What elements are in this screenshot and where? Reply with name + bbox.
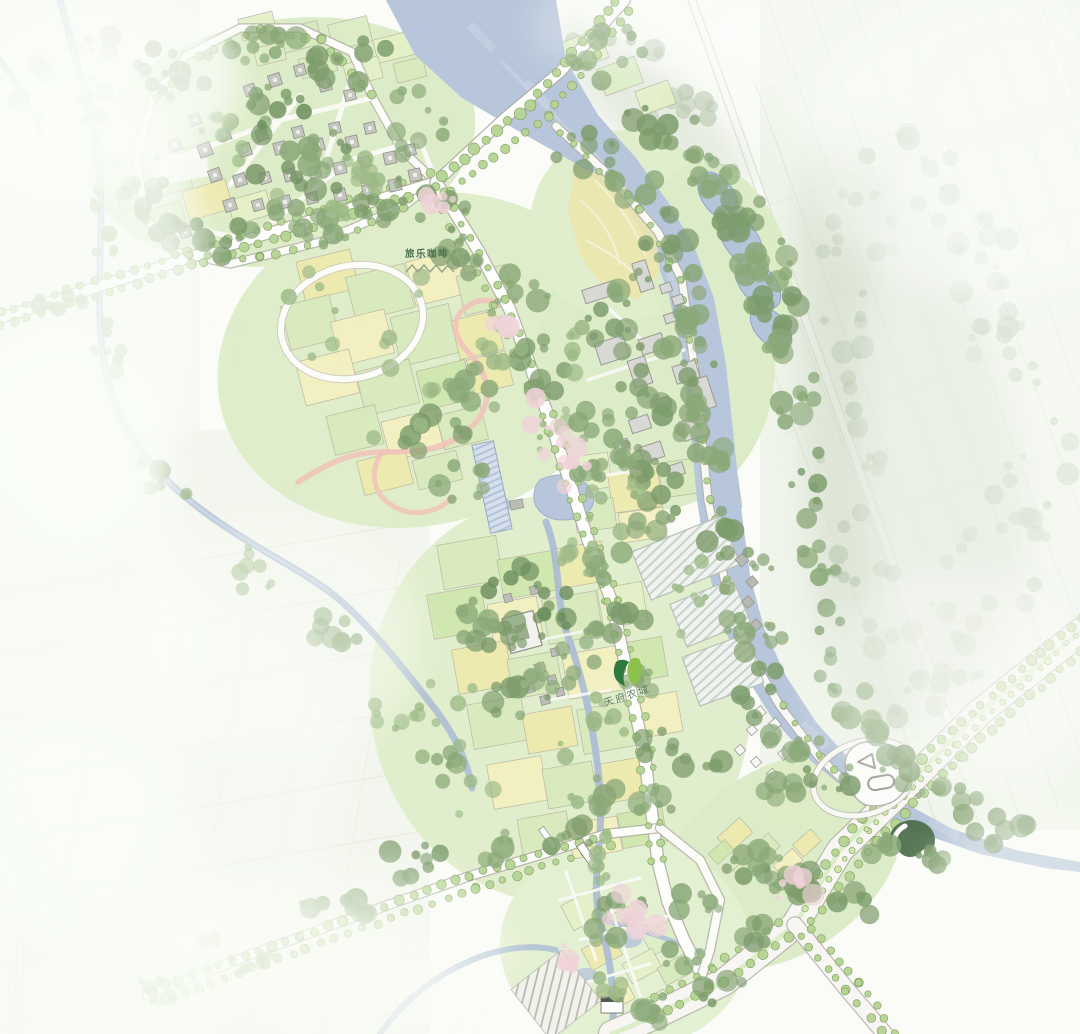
tree-canopy-dot xyxy=(481,380,499,398)
tree-canopy-dot xyxy=(628,791,652,815)
tree-canopy-dot xyxy=(413,417,428,432)
tree-canopy-dot xyxy=(831,340,854,363)
street-tree-dot xyxy=(525,866,534,875)
tree-canopy-dot xyxy=(447,495,456,504)
tree-canopy-dot xyxy=(341,155,353,167)
tree-canopy-dot xyxy=(315,282,324,291)
street-tree-dot xyxy=(522,129,530,137)
blossom-tree-dot xyxy=(793,868,812,887)
tree-canopy-dot xyxy=(366,430,381,445)
tree-canopy-dot xyxy=(661,206,679,224)
tree-canopy-dot xyxy=(559,586,573,600)
tree-canopy-dot xyxy=(775,245,798,268)
street-tree-dot xyxy=(802,905,808,911)
street-tree-dot xyxy=(578,494,586,502)
tree-canopy-dot xyxy=(500,628,518,646)
tree-canopy-dot xyxy=(749,560,756,567)
street-tree-dot xyxy=(830,766,837,773)
tree-canopy-dot xyxy=(712,213,731,232)
tree-canopy-dot xyxy=(450,695,466,711)
tree-canopy-dot xyxy=(585,839,593,847)
street-tree-dot xyxy=(807,925,815,933)
tree-canopy-dot xyxy=(545,381,564,400)
street-tree-dot xyxy=(482,136,490,144)
tree-canopy-dot xyxy=(545,680,560,695)
street-tree-dot xyxy=(567,81,576,90)
tree-canopy-dot xyxy=(662,240,677,255)
tree-canopy-dot xyxy=(473,491,482,500)
street-tree-dot xyxy=(805,943,813,951)
tree-canopy-dot xyxy=(797,391,808,402)
tree-canopy-dot xyxy=(675,584,684,593)
tree-canopy-dot xyxy=(747,214,764,231)
tree-canopy-dot xyxy=(308,352,317,361)
tree-canopy-dot xyxy=(439,117,448,126)
street-tree-dot xyxy=(855,979,862,986)
tree-canopy-dot xyxy=(330,182,342,194)
tree-canopy-dot xyxy=(478,609,500,631)
street-tree-dot xyxy=(501,144,510,153)
street-tree-dot xyxy=(551,101,559,109)
street-tree-dot xyxy=(804,735,811,742)
tree-canopy-dot xyxy=(747,839,770,862)
tree-canopy-dot xyxy=(284,96,293,105)
tree-canopy-dot xyxy=(469,596,478,605)
tree-canopy-dot xyxy=(410,132,427,149)
tree-canopy-dot xyxy=(567,132,576,141)
tree-canopy-dot xyxy=(779,267,793,281)
tree-canopy-dot xyxy=(765,771,788,794)
tree-canopy-dot xyxy=(820,316,829,325)
tree-canopy-dot xyxy=(777,237,785,245)
tree-canopy-dot xyxy=(229,217,247,235)
street-tree-dot xyxy=(485,265,491,271)
street-tree-dot xyxy=(784,932,794,942)
tree-canopy-dot xyxy=(679,96,696,113)
tree-canopy-dot xyxy=(651,457,659,465)
tree-canopy-dot xyxy=(426,679,436,689)
street-tree-dot xyxy=(845,872,855,882)
tree-canopy-dot xyxy=(561,653,567,659)
street-tree-dot xyxy=(367,90,376,99)
tree-canopy-dot xyxy=(587,540,598,551)
tree-canopy-dot xyxy=(708,998,717,1007)
tree-canopy-dot xyxy=(302,265,315,278)
tree-canopy-dot xyxy=(566,364,584,382)
street-tree-dot xyxy=(514,108,526,120)
tree-canopy-dot xyxy=(514,342,528,356)
tree-canopy-dot xyxy=(614,189,634,209)
tree-canopy-dot xyxy=(503,570,518,585)
street-tree-dot xyxy=(580,531,586,537)
tree-canopy-dot xyxy=(714,904,722,912)
tree-canopy-dot xyxy=(269,46,282,59)
tree-canopy-dot xyxy=(287,199,305,217)
street-tree-dot xyxy=(817,935,825,943)
tree-canopy-dot xyxy=(325,337,340,352)
tree-canopy-dot xyxy=(814,735,825,746)
tree-canopy-dot xyxy=(953,804,974,825)
tree-canopy-dot xyxy=(603,428,623,448)
tree-canopy-dot xyxy=(746,709,763,726)
tree-canopy-dot xyxy=(610,447,628,465)
tree-canopy-dot xyxy=(461,207,469,215)
blossom-tree-dot xyxy=(602,913,615,926)
street-tree-dot xyxy=(239,242,249,252)
tree-canopy-dot xyxy=(619,988,627,996)
tree-canopy-dot xyxy=(588,858,605,875)
street-tree-dot xyxy=(449,162,459,172)
tree-canopy-dot xyxy=(798,468,806,476)
tree-canopy-dot xyxy=(636,342,645,351)
tree-canopy-dot xyxy=(646,783,659,796)
street-tree-dot xyxy=(908,798,917,807)
street-tree-dot xyxy=(844,967,852,975)
village-house-roof xyxy=(368,126,372,130)
blossom-tree-dot xyxy=(438,192,447,201)
blossom-tree-dot xyxy=(582,461,592,471)
tree-canopy-dot xyxy=(473,464,485,476)
tree-canopy-dot xyxy=(603,138,620,155)
street-tree-dot xyxy=(842,856,847,861)
street-tree-dot xyxy=(573,513,581,521)
tree-canopy-dot xyxy=(684,565,695,576)
blossom-tree-dot xyxy=(545,425,551,431)
street-tree-dot xyxy=(568,855,575,862)
tree-canopy-dot xyxy=(412,84,427,99)
tree-canopy-dot xyxy=(537,434,543,440)
tree-canopy-dot xyxy=(837,520,850,533)
tree-canopy-dot xyxy=(459,233,467,241)
tree-canopy-dot xyxy=(268,204,285,221)
street-tree-dot xyxy=(867,1014,876,1023)
tree-canopy-dot xyxy=(602,872,611,881)
tree-canopy-dot xyxy=(678,367,696,385)
tree-canopy-dot xyxy=(680,359,688,367)
tree-canopy-dot xyxy=(831,246,842,257)
tree-canopy-dot xyxy=(689,304,710,325)
tree-canopy-dot xyxy=(431,753,443,765)
tree-canopy-dot xyxy=(219,236,232,249)
cafe-area-label: 旅乐咖啡 xyxy=(405,248,449,260)
tree-canopy-dot xyxy=(593,971,606,984)
street-tree-dot xyxy=(467,235,474,242)
street-tree-dot xyxy=(650,764,656,770)
tree-canopy-dot xyxy=(535,661,547,673)
street-tree-dot xyxy=(525,100,536,111)
tree-canopy-dot xyxy=(623,299,631,307)
tree-canopy-dot xyxy=(489,401,500,412)
blossom-tree-dot xyxy=(525,388,545,408)
street-tree-dot xyxy=(486,881,494,889)
tree-canopy-dot xyxy=(459,427,473,441)
tree-canopy-dot xyxy=(455,810,463,818)
tree-canopy-dot xyxy=(782,286,802,306)
street-tree-dot xyxy=(818,906,826,914)
street-tree-dot xyxy=(557,130,564,137)
street-tree-dot xyxy=(513,871,523,881)
blossom-tree-dot xyxy=(536,417,542,423)
tree-canopy-dot xyxy=(757,553,770,566)
tree-canopy-dot xyxy=(435,480,442,487)
tree-canopy-dot xyxy=(476,337,489,350)
tree-canopy-dot xyxy=(924,844,937,857)
tree-canopy-dot xyxy=(694,554,709,569)
tree-canopy-dot xyxy=(526,289,550,313)
tree-canopy-dot xyxy=(296,104,312,120)
tree-canopy-dot xyxy=(916,852,923,859)
tree-canopy-dot xyxy=(752,285,773,306)
street-tree-dot xyxy=(657,819,663,825)
village-house-roof xyxy=(413,173,418,178)
tree-canopy-dot xyxy=(693,451,699,457)
tree-canopy-dot xyxy=(465,363,479,377)
tree-canopy-dot xyxy=(765,636,778,649)
tree-canopy-dot xyxy=(517,638,527,648)
tree-canopy-dot xyxy=(809,483,818,492)
tree-canopy-dot xyxy=(421,842,429,850)
tree-canopy-dot xyxy=(232,154,245,167)
tree-canopy-dot xyxy=(767,663,784,680)
tree-canopy-dot xyxy=(453,739,466,752)
street-tree-dot xyxy=(629,715,636,722)
tree-canopy-dot xyxy=(743,547,754,558)
tree-canopy-dot xyxy=(687,176,698,187)
tree-canopy-dot xyxy=(562,544,579,561)
tree-canopy-dot xyxy=(377,199,400,222)
tree-canopy-dot xyxy=(663,960,670,967)
blossom-tree-dot xyxy=(418,187,435,204)
tree-canopy-dot xyxy=(859,289,867,297)
blossom-tree-dot xyxy=(611,883,631,903)
street-tree-dot xyxy=(666,986,674,994)
tree-canopy-dot xyxy=(382,359,400,377)
tree-canopy-dot xyxy=(319,240,329,250)
tree-canopy-dot xyxy=(646,520,668,542)
tree-canopy-dot xyxy=(392,724,399,731)
masterplan-map-canvas: 旅乐咖啡 天府农城 xyxy=(0,0,1080,1034)
street-tree-dot xyxy=(792,720,798,726)
tree-canopy-dot xyxy=(567,349,579,361)
street-tree-dot xyxy=(499,877,506,884)
fade-wash xyxy=(120,520,420,760)
tree-canopy-dot xyxy=(507,284,524,301)
tree-canopy-dot xyxy=(587,620,606,639)
tree-canopy-dot xyxy=(533,612,545,624)
tree-canopy-dot xyxy=(573,159,593,179)
street-tree-dot xyxy=(520,855,527,862)
tree-canopy-dot xyxy=(456,605,469,618)
tree-canopy-dot xyxy=(645,276,652,283)
street-tree-dot xyxy=(505,860,515,870)
tree-canopy-dot xyxy=(613,342,632,361)
blossom-tree-dot xyxy=(561,943,567,949)
tree-canopy-dot xyxy=(635,268,643,276)
tree-canopy-dot xyxy=(557,748,574,765)
street-tree-dot xyxy=(857,838,863,844)
street-tree-dot xyxy=(264,222,272,230)
tree-canopy-dot xyxy=(467,683,477,693)
tree-canopy-dot xyxy=(487,308,496,317)
tree-canopy-dot xyxy=(625,327,632,334)
tree-canopy-dot xyxy=(330,52,343,65)
tree-canopy-dot xyxy=(544,694,551,701)
tree-canopy-dot xyxy=(876,836,893,853)
tree-canopy-dot xyxy=(212,246,232,266)
tree-canopy-dot xyxy=(611,542,633,564)
tree-canopy-dot xyxy=(729,253,752,276)
tree-canopy-dot xyxy=(562,406,570,414)
tree-canopy-dot xyxy=(561,830,571,840)
street-tree-dot xyxy=(832,849,840,857)
street-tree-dot xyxy=(494,281,502,289)
tree-canopy-dot xyxy=(645,170,664,189)
street-tree-dot xyxy=(204,252,212,260)
courtyard-shed xyxy=(503,593,513,603)
tree-canopy-dot xyxy=(710,360,718,368)
tree-canopy-dot xyxy=(450,417,461,428)
tree-canopy-dot xyxy=(719,164,740,185)
tree-canopy-dot xyxy=(808,372,820,384)
tree-canopy-dot xyxy=(591,70,611,90)
tree-canopy-dot xyxy=(247,41,260,54)
street-tree-dot xyxy=(578,72,584,78)
street-tree-dot xyxy=(816,752,822,758)
tree-canopy-dot xyxy=(606,708,622,724)
tree-canopy-dot xyxy=(746,915,762,931)
street-tree-dot xyxy=(491,125,503,137)
street-tree-dot xyxy=(317,35,326,44)
street-tree-dot xyxy=(590,528,597,535)
tree-canopy-dot xyxy=(653,338,675,360)
tree-canopy-dot xyxy=(809,780,817,788)
street-tree-dot xyxy=(482,285,489,292)
tree-canopy-dot xyxy=(596,571,612,587)
blossom-tree-dot xyxy=(776,895,781,900)
tree-canopy-dot xyxy=(797,547,818,568)
tree-canopy-dot xyxy=(757,935,770,948)
tree-canopy-dot xyxy=(692,976,713,997)
street-tree-dot xyxy=(798,933,805,940)
street-tree-dot xyxy=(468,143,480,155)
tree-canopy-dot xyxy=(744,626,755,637)
tree-canopy-dot xyxy=(722,863,733,874)
tree-canopy-dot xyxy=(692,285,707,300)
tree-canopy-dot xyxy=(753,252,771,270)
tree-canopy-dot xyxy=(634,444,643,453)
street-tree-dot xyxy=(874,820,879,825)
street-tree-dot xyxy=(479,866,487,874)
tree-canopy-dot xyxy=(661,941,679,959)
tree-canopy-dot xyxy=(566,665,582,681)
street-tree-dot xyxy=(832,974,839,981)
tree-canopy-dot xyxy=(791,745,800,754)
blossom-tree-dot xyxy=(566,437,587,458)
blossom-tree-dot xyxy=(438,201,450,213)
tree-canopy-dot xyxy=(379,840,402,863)
street-tree-dot xyxy=(848,824,858,834)
tree-canopy-dot xyxy=(716,970,738,992)
tree-canopy-dot xyxy=(347,71,368,92)
tree-canopy-dot xyxy=(569,327,582,340)
tree-canopy-dot xyxy=(415,702,425,712)
village-house-roof xyxy=(388,156,393,161)
masterplan-svg: 旅乐咖啡 天府农城 xyxy=(0,0,1080,1034)
street-tree-dot xyxy=(469,171,476,178)
tree-canopy-dot xyxy=(803,765,811,773)
tree-canopy-dot xyxy=(768,565,774,571)
tree-canopy-dot xyxy=(456,630,471,645)
tree-canopy-dot xyxy=(719,579,735,595)
tree-canopy-dot xyxy=(605,171,626,192)
street-tree-dot xyxy=(657,839,665,847)
street-tree-dot xyxy=(560,92,566,98)
street-tree-dot xyxy=(489,153,498,162)
street-tree-dot xyxy=(553,859,559,865)
tree-canopy-dot xyxy=(610,603,632,625)
tree-canopy-dot xyxy=(556,608,577,629)
street-tree-dot xyxy=(827,947,835,955)
tree-canopy-dot xyxy=(594,491,607,504)
tree-canopy-dot xyxy=(850,576,861,587)
tree-canopy-dot xyxy=(235,140,250,155)
tree-canopy-dot xyxy=(491,682,502,693)
tree-canopy-dot xyxy=(398,196,407,205)
tree-canopy-dot xyxy=(642,105,649,112)
street-tree-dot xyxy=(853,1000,860,1007)
tree-canopy-dot xyxy=(303,178,327,202)
tree-canopy-dot xyxy=(350,174,363,187)
tree-canopy-dot xyxy=(686,148,701,163)
street-tree-dot xyxy=(826,876,832,882)
tree-canopy-dot xyxy=(690,592,698,600)
tree-canopy-dot xyxy=(633,363,649,379)
street-tree-dot xyxy=(624,629,631,636)
tree-canopy-dot xyxy=(769,328,793,352)
tree-canopy-dot xyxy=(280,141,301,162)
street-tree-dot xyxy=(825,966,832,973)
tree-canopy-dot xyxy=(919,789,926,796)
tree-canopy-dot xyxy=(499,263,521,285)
street-tree-dot xyxy=(821,860,831,870)
tree-canopy-dot xyxy=(329,129,337,137)
street-tree-dot xyxy=(807,917,814,924)
tree-canopy-dot xyxy=(676,629,686,639)
tree-canopy-dot xyxy=(625,407,638,420)
tree-canopy-dot xyxy=(515,710,525,720)
tree-canopy-dot xyxy=(415,212,426,223)
tree-canopy-dot xyxy=(586,515,593,522)
tree-canopy-dot xyxy=(683,960,689,966)
tree-canopy-dot xyxy=(306,55,315,64)
tree-canopy-dot xyxy=(751,661,767,677)
street-tree-dot xyxy=(645,823,651,829)
tree-canopy-dot xyxy=(538,632,546,640)
tree-canopy-dot xyxy=(817,599,836,618)
tree-canopy-dot xyxy=(615,381,626,392)
street-tree-dot xyxy=(679,980,686,987)
tree-canopy-dot xyxy=(244,25,261,42)
tree-canopy-dot xyxy=(473,634,482,643)
street-tree-dot xyxy=(646,841,652,847)
street-tree-dot xyxy=(533,89,542,98)
tree-canopy-dot xyxy=(676,422,691,437)
tree-canopy-dot xyxy=(815,626,825,636)
street-tree-dot xyxy=(538,862,545,869)
tree-canopy-dot xyxy=(550,151,562,163)
tree-canopy-dot xyxy=(387,122,406,141)
tree-canopy-dot xyxy=(604,933,615,944)
